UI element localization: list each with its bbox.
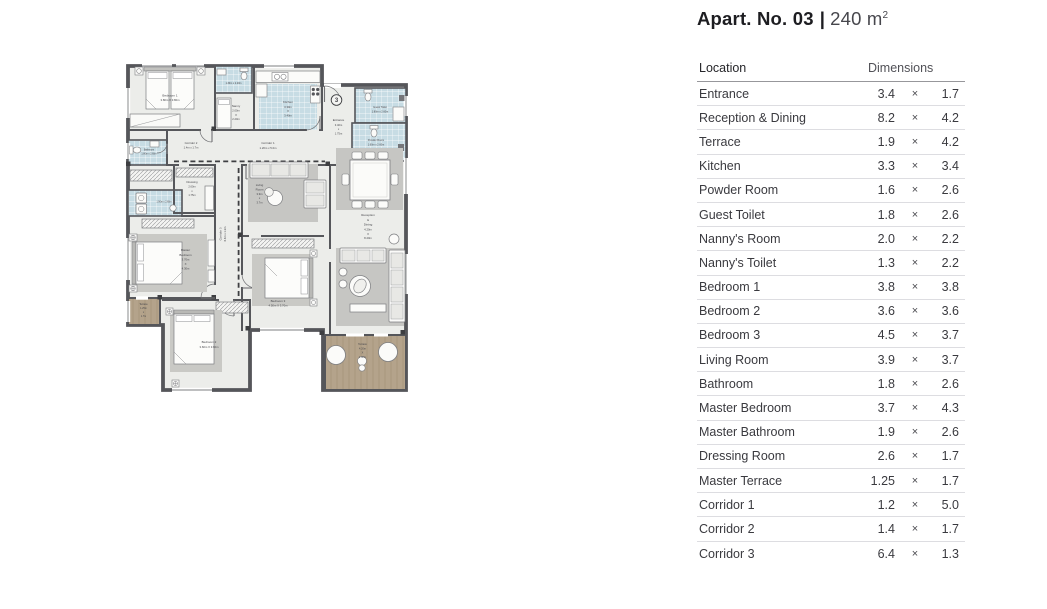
unit-number-badge: 3 [331, 95, 342, 106]
table-row: Bedroom 2 3.6 × 3.6 [697, 300, 965, 324]
row-multiply-sign: × [895, 426, 935, 438]
row-multiply-sign: × [895, 475, 935, 487]
kitchen-label: Kitchen [283, 100, 293, 104]
row-dimension-width: 1.25 [825, 474, 895, 488]
row-location: Entrance [697, 87, 825, 101]
table-row: Bedroom 3 4.5 × 3.7 [697, 324, 965, 348]
svg-text:X: X [185, 262, 187, 266]
svg-text:1.25m: 1.25m [140, 307, 147, 310]
master-bedroom-label: Master [181, 248, 190, 252]
row-multiply-sign: × [895, 136, 935, 148]
table-row: Nanny's Toilet 1.3 × 2.2 [697, 251, 965, 275]
row-location: Bedroom 3 [697, 328, 825, 342]
row-dimension-height: 3.4 [935, 159, 965, 173]
svg-text:1.4m x 1.7m: 1.4m x 1.7m [184, 146, 200, 150]
table-row: Master Terrace 1.25 × 1.7 [697, 469, 965, 493]
table-row: Master Bedroom 3.7 × 4.3 [697, 396, 965, 420]
table-row: Bedroom 1 3.8 × 3.8 [697, 276, 965, 300]
row-dimension-width: 1.9 [825, 425, 895, 439]
row-location: Master Bathroom [697, 425, 825, 439]
row-multiply-sign: × [895, 257, 935, 269]
svg-text:1.20m x 5.0m: 1.20m x 5.0m [260, 146, 278, 150]
living-room-furniture [248, 162, 326, 222]
row-dimension-width: 1.4 [825, 522, 895, 536]
powder-room-label: Powder Room [368, 138, 384, 142]
svg-text:1.60m x 2.60m: 1.60m x 2.60m [368, 143, 385, 146]
svg-text:2.00m: 2.00m [232, 109, 240, 113]
floor-plan-svg: 3 Bedroom 1 3.80m X 3.80m 1.30m x 2.20m … [112, 58, 412, 406]
svg-text:Room: Room [256, 188, 264, 192]
svg-text:3.7m: 3.7m [257, 200, 264, 204]
title-separator: | [820, 8, 825, 29]
row-dimension-height: 2.6 [935, 425, 965, 439]
row-location: Master Terrace [697, 474, 825, 488]
row-location: Bathroom [697, 377, 825, 391]
table-row: Terrace 1.9 × 4.2 [697, 130, 965, 154]
row-dimension-width: 6.4 [825, 547, 895, 561]
row-location: Guest Toilet [697, 208, 825, 222]
master-bathroom-label: 1.90m x 2.60m [156, 202, 171, 204]
corridor3-label: Corridor 3 [219, 227, 223, 240]
row-multiply-sign: × [895, 402, 935, 414]
row-location: Nanny's Toilet [697, 256, 825, 270]
row-location: Bedroom 1 [697, 280, 825, 294]
row-multiply-sign: × [895, 329, 935, 341]
svg-text:X: X [367, 232, 369, 236]
row-dimension-height: 5.0 [935, 498, 965, 512]
row-dimension-width: 1.8 [825, 208, 895, 222]
row-dimension-height: 1.7 [935, 474, 965, 488]
row-dimension-height: 4.2 [935, 135, 965, 149]
row-multiply-sign: × [895, 378, 935, 390]
table-row: Entrance 3.4 × 1.7 [697, 82, 965, 106]
nanny-label: Nanny [232, 104, 241, 108]
table-row: Nanny's Room 2.0 × 2.2 [697, 227, 965, 251]
table-row: Living Room 3.9 × 3.7 [697, 348, 965, 372]
row-location: Nanny's Room [697, 232, 825, 246]
row-dimension-width: 1.8 [825, 377, 895, 391]
table-row: Guest Toilet 1.8 × 2.6 [697, 203, 965, 227]
apartment-area: 240 m2 [830, 8, 888, 29]
row-dimension-width: 1.9 [825, 135, 895, 149]
row-dimension-height: 2.2 [935, 232, 965, 246]
reception-label: Reception [361, 213, 375, 217]
corridor2-label: Corridor 2 [185, 141, 198, 145]
svg-text:3.40m: 3.40m [335, 123, 343, 127]
guest-toilet-label: Guest Toilet [373, 105, 387, 109]
row-dimension-width: 3.8 [825, 280, 895, 294]
bedroom1-label: Bedroom 1 [162, 94, 177, 98]
row-multiply-sign: × [895, 184, 935, 196]
row-location: Powder Room [697, 183, 825, 197]
row-dimension-height: 4.3 [935, 401, 965, 415]
floor-plan: 3 Bedroom 1 3.80m X 3.80m 1.30m x 2.20m … [112, 58, 412, 406]
svg-text:Bedroom: Bedroom [179, 253, 192, 257]
table-row: Corridor 2 1.4 × 1.7 [697, 517, 965, 541]
svg-text:4.30m: 4.30m [182, 266, 190, 270]
svg-text:1.7m: 1.7m [141, 315, 146, 318]
row-location: Kitchen [697, 159, 825, 173]
header-location: Location [697, 61, 868, 75]
svg-text:1.75m: 1.75m [188, 193, 195, 197]
svg-text:4.20m: 4.20m [364, 227, 372, 231]
row-location: Corridor 1 [697, 498, 825, 512]
svg-text:1.80m x 2.60m: 1.80m x 2.60m [141, 153, 156, 155]
row-dimension-height: 3.6 [935, 304, 965, 318]
svg-text:Dining: Dining [364, 223, 373, 227]
svg-text:1.90m: 1.90m [359, 356, 366, 359]
living-room-label: Living [256, 183, 264, 187]
table-row: Powder Room 1.6 × 2.6 [697, 179, 965, 203]
row-location: Master Bedroom [697, 401, 825, 415]
row-dimension-width: 3.4 [825, 87, 895, 101]
svg-text:3.40m: 3.40m [284, 114, 292, 118]
row-location: Bedroom 2 [697, 304, 825, 318]
svg-text:1.75m: 1.75m [335, 132, 343, 136]
table-row: Corridor 3 6.4 × 1.3 [697, 542, 965, 566]
row-dimension-height: 1.7 [935, 449, 965, 463]
master-terrace-label: Terrace [139, 303, 148, 306]
row-dimension-width: 2.6 [825, 449, 895, 463]
dimensions-table-body: Entrance 3.4 × 1.7 Reception & Dining 8.… [697, 82, 965, 566]
main-terrace-label: Terrace [358, 342, 367, 346]
svg-text:1.80m x 2.60m: 1.80m x 2.60m [372, 110, 389, 113]
svg-text:3.9m: 3.9m [257, 192, 264, 196]
row-dimension-width: 3.9 [825, 353, 895, 367]
apartment-title: Apart. No. 03|240 m2 [697, 8, 965, 30]
row-dimension-width: 3.7 [825, 401, 895, 415]
dressing-label: Dressing [186, 180, 197, 184]
row-dimension-height: 1.3 [935, 547, 965, 561]
row-multiply-sign: × [895, 523, 935, 535]
row-dimension-height: 3.7 [935, 353, 965, 367]
row-location: Dressing Room [697, 449, 825, 463]
svg-text:2.20m: 2.20m [232, 117, 240, 121]
row-dimension-height: 2.6 [935, 377, 965, 391]
entrance-label: Entrance [333, 118, 345, 122]
table-header: Location Dimensions [697, 61, 965, 82]
bathroom-label: Bathroom [144, 149, 154, 152]
row-multiply-sign: × [895, 450, 935, 462]
svg-text:6.4m x 1.3m: 6.4m x 1.3m [223, 226, 227, 242]
svg-text:X: X [287, 109, 289, 113]
row-location: Reception & Dining [697, 111, 825, 125]
svg-text:3.70m: 3.70m [182, 258, 190, 262]
bedroom3-label: Bedroom 3 [271, 299, 286, 303]
row-dimension-height: 3.7 [935, 328, 965, 342]
row-dimension-width: 1.6 [825, 183, 895, 197]
row-multiply-sign: × [895, 88, 935, 100]
svg-text:3.30m: 3.30m [284, 105, 292, 109]
table-row: Bathroom 1.8 × 2.6 [697, 372, 965, 396]
svg-text:3.80m X 3.80m: 3.80m X 3.80m [161, 98, 181, 102]
svg-text:3.60m X 3.60m: 3.60m X 3.60m [200, 345, 220, 349]
row-dimension-height: 2.2 [935, 256, 965, 270]
row-multiply-sign: × [895, 160, 935, 172]
apartment-number: Apart. No. 03 [697, 8, 814, 29]
row-dimension-width: 4.5 [825, 328, 895, 342]
svg-text:&: & [367, 218, 369, 222]
row-multiply-sign: × [895, 305, 935, 317]
row-location: Corridor 2 [697, 522, 825, 536]
info-panel: Apart. No. 03|240 m2 Location Dimensions… [697, 8, 965, 566]
svg-text:4.20m: 4.20m [359, 347, 366, 350]
nannys-toilet-label: 1.30m x 2.20m [226, 82, 242, 85]
row-dimension-height: 1.7 [935, 522, 965, 536]
table-row: Kitchen 3.3 × 3.4 [697, 155, 965, 179]
row-dimension-height: 2.6 [935, 183, 965, 197]
row-multiply-sign: × [895, 354, 935, 366]
page: { "title": { "apartment": "Apart. No. 03… [0, 0, 1047, 609]
row-dimension-height: 1.7 [935, 87, 965, 101]
row-dimension-width: 2.0 [825, 232, 895, 246]
row-dimension-width: 1.3 [825, 256, 895, 270]
row-dimension-width: 3.3 [825, 159, 895, 173]
table-row: Dressing Room 2.6 × 1.7 [697, 445, 965, 469]
row-dimension-height: 3.8 [935, 280, 965, 294]
svg-text:X: X [235, 113, 237, 117]
table-row: Master Bathroom 1.9 × 2.6 [697, 421, 965, 445]
svg-text:4.50m X 3.70m: 4.50m X 3.70m [269, 304, 289, 308]
svg-text:2.60m: 2.60m [188, 185, 195, 189]
row-location: Terrace [697, 135, 825, 149]
corridor1-label: Corridor 1 [261, 141, 275, 145]
row-multiply-sign: × [895, 112, 935, 124]
row-multiply-sign: × [895, 548, 935, 560]
table-row: Corridor 1 1.2 × 5.0 [697, 493, 965, 517]
table-row: Reception & Dining 8.2 × 4.2 [697, 106, 965, 130]
svg-text:8.20m: 8.20m [364, 236, 372, 240]
row-dimension-width: 1.2 [825, 498, 895, 512]
row-multiply-sign: × [895, 233, 935, 245]
row-dimension-height: 4.2 [935, 111, 965, 125]
row-location: Living Room [697, 353, 825, 367]
row-multiply-sign: × [895, 499, 935, 511]
row-dimension-height: 2.6 [935, 208, 965, 222]
row-location: Corridor 3 [697, 547, 825, 561]
bedroom2-label: Bedroom 2 [202, 340, 217, 344]
row-dimension-width: 3.6 [825, 304, 895, 318]
row-dimension-width: 8.2 [825, 111, 895, 125]
row-multiply-sign: × [895, 209, 935, 221]
row-multiply-sign: × [895, 281, 935, 293]
header-dimensions: Dimensions [868, 61, 965, 75]
